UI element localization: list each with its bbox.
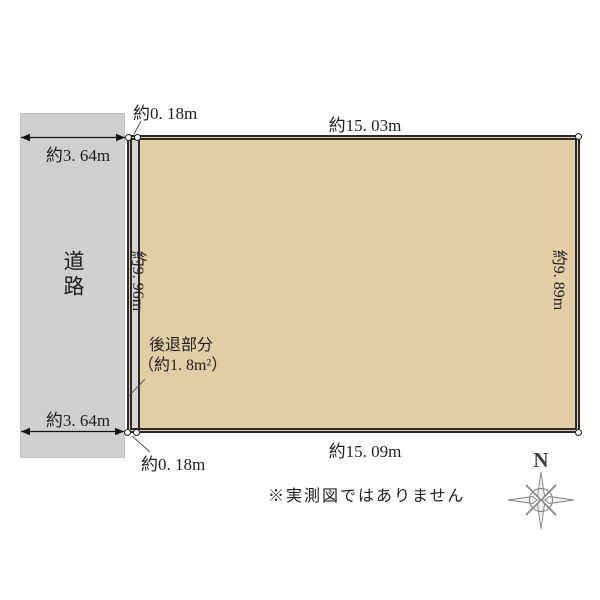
survey-disclaimer-note: ※実測図ではありません (268, 482, 466, 506)
plot-left-length-label: 約9. 96m (128, 241, 152, 321)
vertex-marker (133, 429, 140, 436)
plot-top-length-label: 約15. 03m (300, 111, 430, 136)
site-plan-diagram: 道路 約15. 03m 約15. 09m 約3. 64m 約3. 64m 約0.… (0, 0, 600, 600)
vertex-marker (575, 133, 582, 140)
vertex-marker (125, 134, 132, 141)
land-plot (127, 135, 580, 433)
road-label: 道路 (58, 250, 88, 300)
plot-bottom-length-label: 約15. 09m (300, 437, 430, 462)
setback-note-line1: 後退部分 (138, 336, 224, 356)
road-width-top-label: 約3. 64m (28, 141, 128, 166)
setback-width-bottom-label: 約0. 18m (141, 450, 205, 475)
vertex-marker (134, 134, 141, 141)
setback-note-line2: （約1. 8m²） (138, 356, 224, 376)
compass-icon: N (505, 441, 577, 536)
compass-north-label: N (533, 448, 548, 472)
road-width-bottom-label: 約3. 64m (28, 406, 128, 431)
plot-right-length-label: 約9. 89m (549, 240, 573, 320)
setback-note: 後退部分 （約1. 8m²） (138, 336, 224, 376)
vertex-marker (575, 429, 582, 436)
setback-width-top-label: 約0. 18m (133, 99, 197, 124)
compass-star (508, 472, 574, 529)
